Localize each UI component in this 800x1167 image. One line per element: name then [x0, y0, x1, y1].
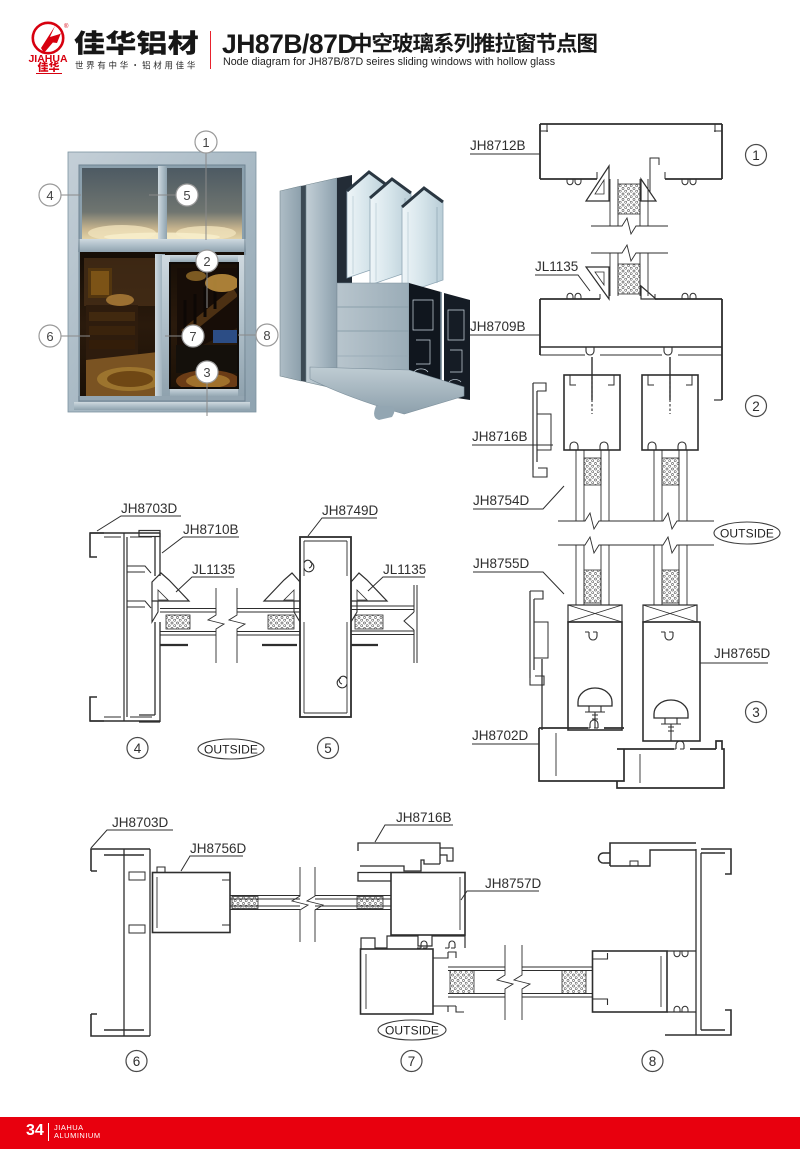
svg-text:5: 5 [183, 188, 190, 203]
svg-text:1: 1 [752, 148, 760, 163]
svg-text:OUTSIDE: OUTSIDE [204, 743, 258, 757]
svg-text:4: 4 [46, 188, 53, 203]
svg-text:JH8755D: JH8755D [473, 556, 530, 571]
svg-text:JL1135: JL1135 [383, 562, 426, 577]
svg-text:JL1135: JL1135 [192, 562, 235, 577]
svg-text:3: 3 [752, 705, 760, 720]
svg-text:8: 8 [263, 328, 270, 343]
svg-text:2: 2 [752, 399, 760, 414]
svg-text:JH8712B: JH8712B [470, 138, 526, 153]
svg-text:JH8765D: JH8765D [714, 646, 771, 661]
svg-text:JH8702D: JH8702D [472, 728, 529, 743]
svg-text:3: 3 [203, 365, 210, 380]
svg-text:JH8703D: JH8703D [112, 815, 169, 830]
svg-text:JH8716B: JH8716B [472, 429, 528, 444]
svg-text:JH8757D: JH8757D [485, 876, 542, 891]
svg-text:JH8709B: JH8709B [470, 319, 526, 334]
svg-text:JH8710B: JH8710B [183, 522, 239, 537]
svg-text:6: 6 [133, 1054, 141, 1069]
svg-text:JH8754D: JH8754D [473, 493, 530, 508]
svg-text:JH8749D: JH8749D [322, 503, 379, 518]
svg-text:JH8756D: JH8756D [190, 841, 247, 856]
svg-text:2: 2 [203, 254, 210, 269]
svg-text:OUTSIDE: OUTSIDE [385, 1024, 439, 1038]
svg-text:8: 8 [649, 1054, 657, 1069]
svg-text:OUTSIDE: OUTSIDE [720, 527, 774, 541]
svg-text:4: 4 [134, 741, 142, 756]
svg-text:JH8703D: JH8703D [121, 501, 178, 516]
svg-text:7: 7 [189, 329, 196, 344]
svg-text:6: 6 [46, 329, 53, 344]
svg-text:1: 1 [202, 135, 209, 150]
svg-text:7: 7 [408, 1054, 416, 1069]
svg-text:JL1135: JL1135 [535, 259, 578, 274]
svg-text:JH8716B: JH8716B [396, 810, 452, 825]
svg-text:5: 5 [324, 741, 332, 756]
